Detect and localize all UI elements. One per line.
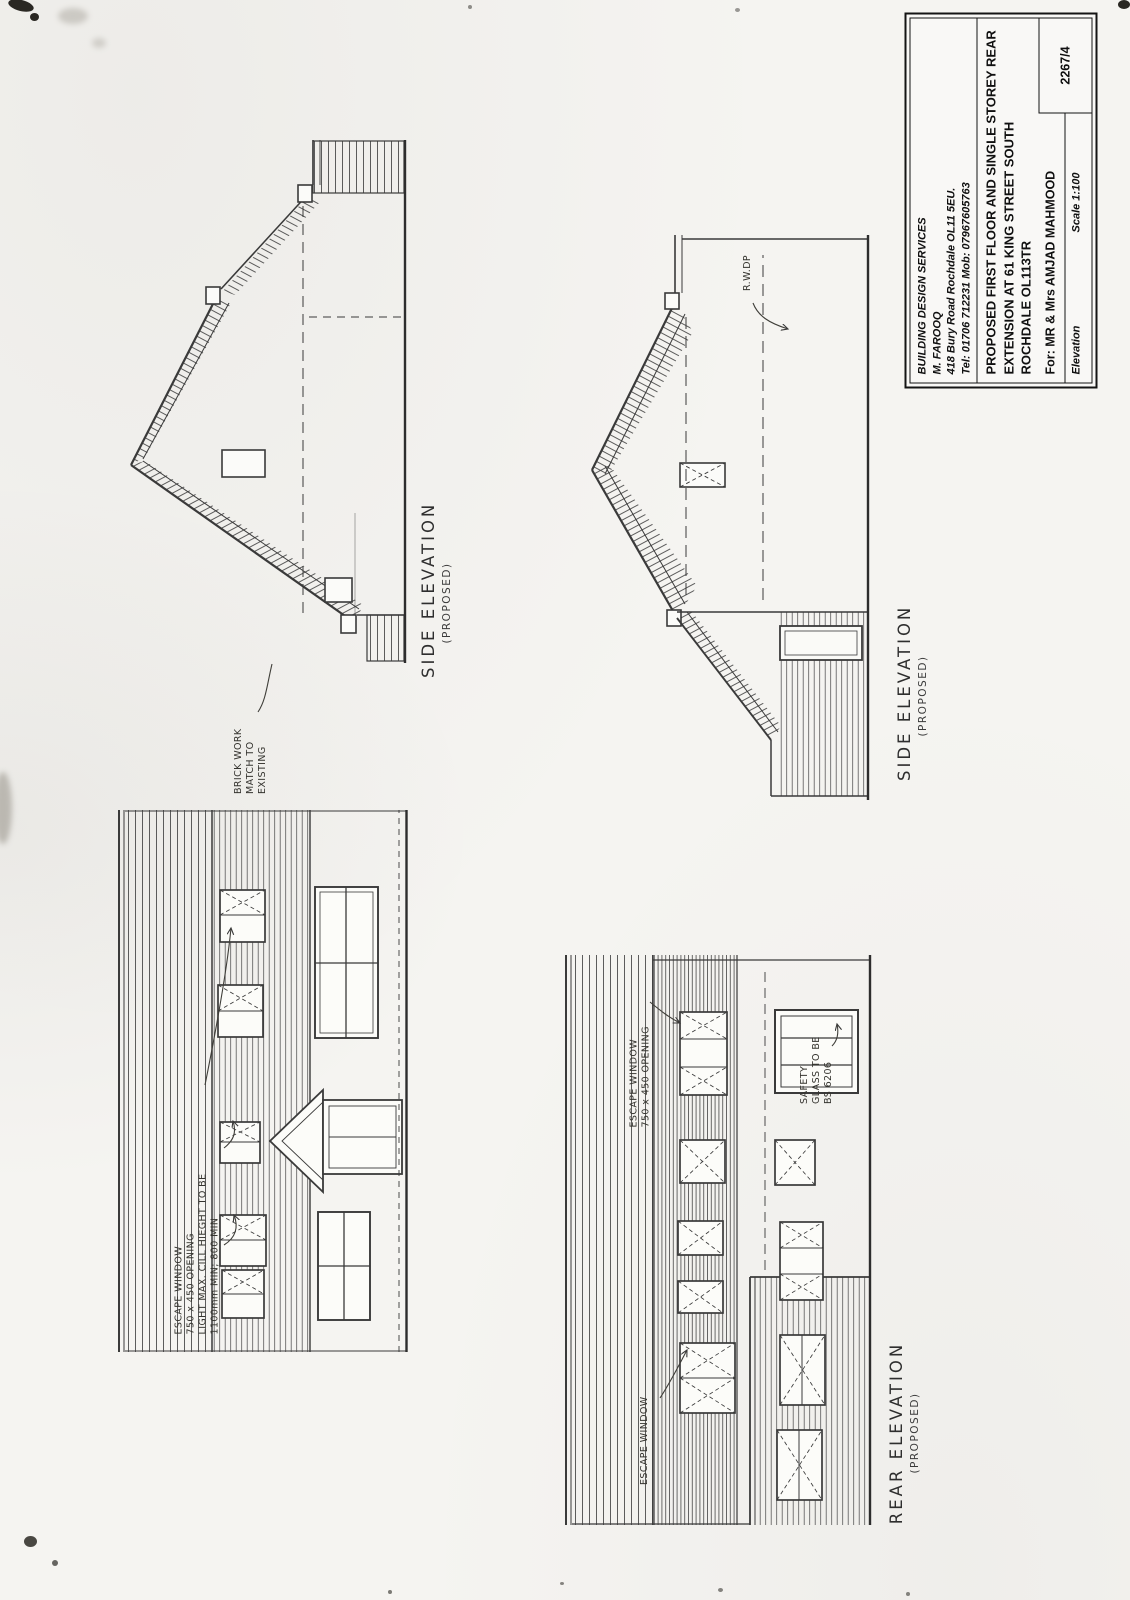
note-rwdp-line: R.W.DP [742,227,754,291]
label-side-elevation-2-subtitle: (PROPOSED) [917,611,929,781]
brick-note-leader [258,664,272,712]
note-escape-full-line3: LIGHT MAX. CILL HIEGHT TO BE [198,1150,210,1335]
note-escape-full-line4: 1100mm MIN; 800 MIN [210,1150,222,1335]
drawing-side-elevation-1 [115,140,408,663]
scan-artifact [0,772,12,844]
title-block-header: BUILDING DESIGN SERVICES M. FAROOQ 418 B… [916,23,975,375]
label-side-elevation-1-title: SIDE ELEVATION [419,528,438,678]
title-block-bottom-row: Elevation Scale 1:100 [1065,113,1092,383]
scan-artifact [7,0,35,14]
scan-artifact [718,1588,723,1592]
title-block: BUILDING DESIGN SERVICES M. FAROOQ 418 B… [905,13,1098,389]
note-rwdp: R.W.DP [742,227,756,291]
note-brickwork: BRICK WORK MATCH TO EXISTING [233,710,271,794]
label-side-elevation-1: SIDE ELEVATION (PROPOSED) [419,528,471,678]
drawing-side-elevation-2 [575,235,872,800]
scan-artifact [52,1560,58,1566]
scan-artifact [92,38,106,48]
label-side-elevation-2-title: SIDE ELEVATION [895,611,914,781]
scanned-drawing-sheet: SIDE ELEVATION (PROPOSED) SIDE ELEVATION… [0,0,1130,1600]
scan-artifact [58,8,88,24]
note-escape-window-single: ESCAPE WINDOW [639,1381,653,1485]
note-brickwork-line1: BRICK WORK [233,710,245,794]
drawing-number-cell: 2267/4 [1039,19,1092,114]
project-title-line3: ROCHDALE OL113TR [1018,23,1036,375]
side-elevation-2-linework [575,235,872,800]
rear-elevation-1-linework [118,810,408,1352]
scan-artifact [388,1590,392,1594]
sheet-type: Elevation [1071,326,1083,375]
note-safety-line1: SAFETY [799,1024,811,1104]
scan-artifact [560,1582,564,1585]
drawing-rear-elevation-1 [118,810,408,1352]
note-safety-glass: SAFETY GLASS TO BE BS 6206 [799,1024,833,1104]
client-name: For: MR & Mrs AMJAD MAHMOOD [1044,171,1058,375]
author-name: M. FAROOQ [930,23,945,375]
note-brickwork-line2: MATCH TO [245,710,257,794]
note-escape-full-line1: ESCAPE WINDOW [174,1150,186,1335]
label-rear-elevation: REAR ELEVATION (PROPOSED) [887,1338,945,1528]
title-block-divider [977,19,978,383]
scan-artifact [24,1536,37,1547]
title-block-inner: BUILDING DESIGN SERVICES M. FAROOQ 418 B… [910,18,1093,384]
label-side-elevation-1-subtitle: (PROPOSED) [441,528,453,678]
scan-artifact [1118,0,1130,9]
company-phone: Tel: 01706 712231 Mob: 07967605763 [960,23,975,375]
project-title-line1: PROPOSED FIRST FLOOR AND SINGLE STOREY R… [983,23,1001,375]
project-title-line2: EXTENSION AT 61 KING STREET SOUTH [1000,23,1018,375]
label-rear-elevation-title: REAR ELEVATION [887,1338,906,1528]
company-address: 418 Bury Road Rochdale OL11 5EU. [945,23,960,375]
note-escape-short-line2: 750 x 450 OPENING [641,995,653,1128]
scan-artifact [906,1592,910,1596]
note-escape-single-line: ESCAPE WINDOW [639,1381,651,1485]
drawing-number: 2267/4 [1059,46,1073,84]
project-title: PROPOSED FIRST FLOOR AND SINGLE STOREY R… [983,23,1036,375]
scan-artifact [468,5,472,9]
drawing-scale: Scale 1:100 [1071,173,1083,233]
label-side-elevation-2: SIDE ELEVATION (PROPOSED) [895,611,949,781]
company-name: BUILDING DESIGN SERVICES [916,23,931,375]
note-brickwork-line3: EXISTING [257,710,269,794]
note-escape-short-line1: ESCAPE WINDOW [629,995,641,1128]
label-rear-elevation-subtitle: (PROPOSED) [909,1338,921,1528]
note-safety-line3: BS 6206 [823,1024,835,1104]
note-escape-window-full: ESCAPE WINDOW 750 x 450 OPENING LIGHT MA… [174,1150,220,1335]
scan-artifact [30,13,39,21]
side-elevation-1-linework [115,140,408,663]
note-escape-full-line2: 750 x 450 OPENING [186,1150,198,1335]
scan-artifact [735,8,740,12]
note-escape-window-short: ESCAPE WINDOW 750 x 450 OPENING [629,995,655,1128]
note-safety-line2: GLASS TO BE [811,1024,823,1104]
